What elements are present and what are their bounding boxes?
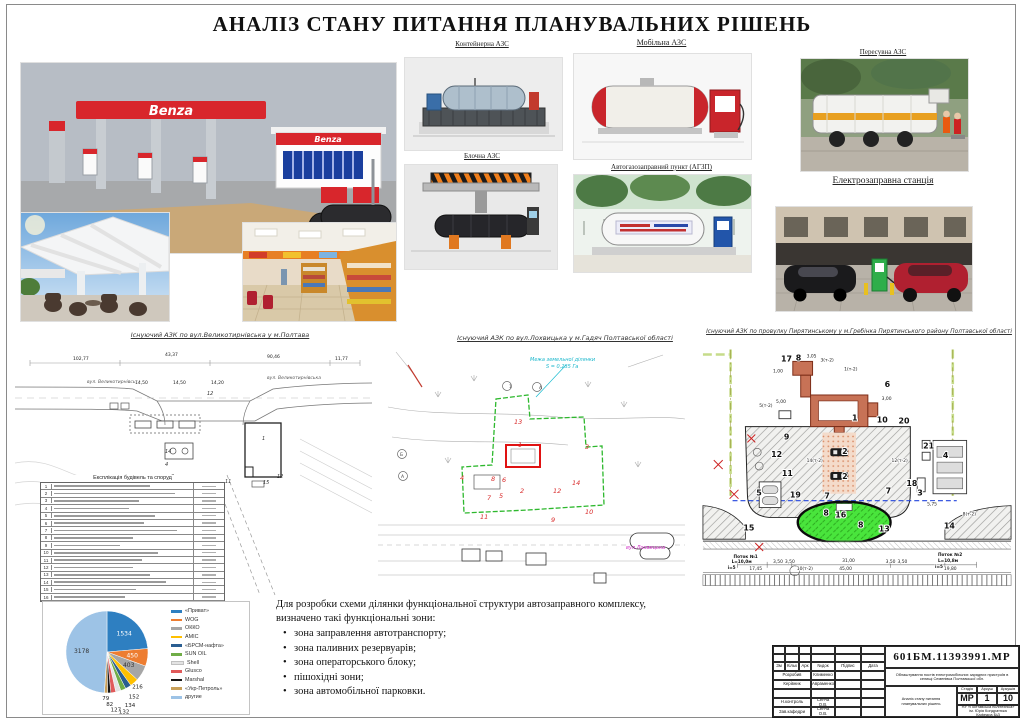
- plan-label: 5: [756, 489, 762, 498]
- legend-marker: [171, 619, 182, 622]
- plan-label: 7: [487, 494, 492, 502]
- stamp-role-head: Зав.кафедри: [773, 707, 811, 717]
- explication-row: 15: [41, 586, 224, 593]
- legend-item: ОККО: [171, 624, 247, 633]
- stamp-name-supervisor: Авраменко: [811, 680, 835, 689]
- ev-charging-photo: [775, 206, 973, 312]
- caption-plan-hrebinka: Існуючий АЗК по провулку Пирятинському у…: [700, 329, 1018, 335]
- pie-value-label: 82: [106, 702, 113, 708]
- stamp-role-developer: Розробив: [773, 671, 811, 680]
- zone-bullet: зона операторського блоку;: [294, 656, 700, 670]
- plan-label: 11: [225, 479, 231, 485]
- plan-label: L=10,8м: [938, 558, 959, 563]
- plan-label: 45,00: [839, 566, 852, 572]
- plan-label: 3,50: [773, 559, 783, 565]
- stamp-col-ark: Арк: [799, 662, 811, 671]
- plan-label: 1: [852, 414, 858, 423]
- notes-line1: Для розробки схеми ділянки функціонально…: [276, 598, 700, 612]
- zones-bullet-list: зона заправлення автотранспорту;зона пал…: [282, 627, 700, 699]
- plan-label: 11: [782, 469, 793, 478]
- stamp-name-head: Сенча О.В.: [811, 707, 835, 717]
- zone-bullet: зона паливних резервуарів;: [294, 642, 700, 656]
- plan-label: 10(т-2): [797, 566, 813, 572]
- legend-item: Marshal: [171, 676, 247, 685]
- plan-label: 13: [514, 418, 522, 426]
- stamp-sheets-value: 10: [997, 693, 1019, 705]
- plan-label: Поток №2: [938, 552, 962, 557]
- stamp-organization: НУ «Полтавська політехніка» ім. Юрія Кон…: [957, 705, 1019, 717]
- plan-label: 9: [551, 516, 555, 524]
- plan-label: 21: [923, 441, 934, 450]
- caption-agzp: Автогазозаправний пункт (АГЗП): [573, 163, 750, 171]
- plan-label: 12: [277, 474, 283, 480]
- plan-label: 14: [165, 449, 171, 455]
- legend-marker: [171, 627, 182, 630]
- plan-label: 12(т-2): [892, 458, 908, 464]
- stamp-role-ncontrol: Н.контроль: [773, 698, 811, 707]
- legend-marker: [171, 644, 182, 647]
- plan-label: 14(т-2): [807, 458, 823, 464]
- explication-row: 2: [41, 490, 224, 497]
- svg-text:Межа земельної ділянки: Межа земельної ділянки: [530, 357, 596, 363]
- brand-pie-chart: 153445040321615213413212782793178 «Прива…: [42, 601, 250, 715]
- pie-value-label: 134: [125, 703, 136, 709]
- legend-marker: [171, 636, 182, 639]
- explication-row: 12: [41, 564, 224, 571]
- plan-label: 3,50: [785, 559, 795, 565]
- legend-item: АМІС: [171, 633, 247, 642]
- zone-bullet: зона автомобільної парковки.: [294, 685, 700, 699]
- svg-text:Benza: Benza: [314, 135, 341, 144]
- terrace-photo: [20, 212, 170, 322]
- block-azs-photo: [404, 164, 558, 270]
- legend-marker: [171, 687, 182, 690]
- plan-label: 16: [835, 510, 846, 519]
- stamp-sheet-title: Аналіз стану питання планувальних рішень: [885, 686, 957, 717]
- legend-marker: [171, 670, 182, 673]
- legend-marker: [171, 653, 182, 656]
- svg-text:вул. Великотирнівська: вул. Великотирнівська: [267, 375, 321, 381]
- stamp-col-kilk: Кільк: [785, 662, 799, 671]
- zone-bullet: пішохідні зони;: [294, 671, 700, 685]
- plan-label: 11,77: [335, 356, 348, 362]
- pie-value-label: 127: [111, 707, 122, 713]
- plan-label: 9: [784, 432, 790, 441]
- caption-movable-azs: Пересувна АЗС: [798, 48, 968, 56]
- plan-label: 4: [943, 451, 949, 460]
- plan-label: 1: [262, 436, 265, 442]
- plan-label: 14: [572, 479, 580, 487]
- plan-label: 102,77: [73, 356, 89, 362]
- plan-label: 14,50: [173, 380, 186, 386]
- explication-grid: 12345678910111213141516: [40, 482, 225, 602]
- svg-text:S = 0,235 Га: S = 0,235 Га: [546, 364, 578, 370]
- plan-label: 7: [824, 492, 830, 501]
- caption-plan-poltava: Існуючий АЗК по вул.Великотирнівська у м…: [80, 331, 360, 339]
- legend-marker: [171, 661, 184, 666]
- stamp-col-doc: №док: [811, 662, 835, 671]
- plan-label: 2: [520, 487, 524, 495]
- plan-label: 14: [944, 521, 955, 530]
- plan-label: 20: [898, 417, 909, 426]
- container-azs-photo: [404, 57, 563, 151]
- plan-label: 8: [796, 353, 802, 362]
- plan-label: 3,05: [807, 353, 817, 359]
- plan-label: 3,50: [886, 559, 896, 565]
- plan-label: 3: [917, 489, 923, 498]
- plan-label: 17: [781, 354, 792, 363]
- stamp-doc-number: 601БМ.11393991.МР: [885, 646, 1019, 668]
- legend-marker: [171, 696, 182, 699]
- notes-line2: визначено такі функціональні зони:: [276, 612, 700, 626]
- plan-label: 3(т-2): [820, 357, 834, 363]
- plan-label: 3,00: [882, 396, 892, 402]
- pie-value-label: 1534: [117, 630, 132, 637]
- store-interior-photo: [242, 222, 397, 322]
- stamp-sheet-value: 1: [977, 693, 997, 705]
- plan-label: 14,20: [211, 380, 224, 386]
- stamp-col-date: Дата: [861, 662, 885, 671]
- plan-label: 6: [885, 380, 891, 389]
- plan-label: 8(т-2): [963, 511, 977, 517]
- plan-label: 43,37: [165, 352, 178, 358]
- pie-svg: 153445040321615213413212782793178: [43, 602, 171, 714]
- plan-label: 5,75: [927, 502, 937, 508]
- caption-block-azs: Блочна АЗС: [402, 152, 562, 160]
- caption-plan-hadiach: Існуючий АЗК по вул.Лохвицька у м.Гадяч …: [440, 334, 690, 342]
- plan-label: 4: [460, 474, 464, 482]
- plan-label: 5,00: [776, 399, 786, 405]
- explication-row: 9: [41, 542, 224, 549]
- explication-title: Експлікація будівель та споруд: [40, 475, 225, 481]
- explication-row: 13: [41, 572, 224, 579]
- plan-label: 2: [842, 472, 848, 481]
- plan-label: 6: [502, 476, 506, 484]
- plan-label: 12: [207, 391, 213, 397]
- plan-label: 5: [499, 492, 503, 500]
- chart-legend: «Приват»WOGОККОАМІС«БРСМ-нафта»SUN OILSh…: [171, 607, 247, 702]
- explication-table: Експлікація будівель та споруд 123456789…: [40, 475, 225, 602]
- plan-label: 19,80: [944, 566, 957, 572]
- legend-marker: [171, 610, 182, 613]
- plan-label: 19: [790, 491, 801, 500]
- caption-mobile-azs: Мобільна АЗС: [573, 38, 750, 47]
- plan-label: 12: [553, 487, 561, 495]
- plan-label: 8: [823, 508, 829, 517]
- plan-label: А: [401, 474, 405, 480]
- plan-label: 8: [491, 475, 495, 483]
- plan-label: 15: [263, 480, 269, 486]
- plan-poltava: вул. Великотирнівська вул. Великотирнівс…: [15, 343, 372, 597]
- explication-row: 3: [41, 498, 224, 505]
- poster-page: АНАЛІЗ СТАНУ ПИТАННЯ ПЛАНУВАЛЬНИХ РІШЕНЬ…: [0, 0, 1024, 724]
- plan-label: 8: [858, 520, 864, 529]
- plan-label: 1(т-2): [844, 366, 858, 372]
- legend-item: «Приват»: [171, 607, 247, 616]
- explication-row: 8: [41, 535, 224, 542]
- plan-label: 1,00: [773, 368, 783, 374]
- plan-label: 18: [906, 479, 917, 488]
- plan-label: 10: [585, 508, 593, 516]
- caption-electro-station: Електрозаправна станція: [793, 176, 973, 186]
- plan-label: 2: [842, 447, 848, 456]
- plan-label: Б: [400, 452, 403, 458]
- stamp-sheets-label: Аркушів: [997, 686, 1019, 693]
- explication-row: 14: [41, 579, 224, 586]
- plan-label: 11: [480, 513, 488, 521]
- pie-value-label: 216: [132, 684, 143, 690]
- legend-item: Shell: [171, 659, 247, 668]
- explication-row: 10: [41, 550, 224, 557]
- legend-marker: [171, 679, 182, 682]
- legend-item: Glusco: [171, 667, 247, 676]
- plan-label: 12: [771, 450, 782, 459]
- plan-label: 4: [165, 462, 168, 468]
- pie-value-label: 152: [129, 694, 140, 700]
- stamp-role-supervisor: Керівник: [773, 680, 811, 689]
- pie-value-label: 450: [126, 652, 138, 659]
- pie-value-label: 3178: [74, 648, 89, 655]
- plan-label: L=10,0м: [732, 559, 753, 564]
- plan-label: 15: [743, 523, 754, 532]
- svg-text:вул.Лохвицька: вул.Лохвицька: [626, 545, 665, 551]
- agzp-photo: [573, 174, 752, 273]
- svg-text:Benza: Benza: [149, 104, 193, 119]
- explication-row: 6: [41, 520, 224, 527]
- stamp-col-sign: Підпис: [835, 662, 861, 671]
- legend-item: «Укр-Петроль»: [171, 684, 247, 693]
- mobile-azs-photo: [573, 53, 752, 160]
- explication-row: 5: [41, 513, 224, 520]
- stamp-stage-value: МР: [957, 693, 977, 705]
- plan-label: 3: [585, 443, 589, 451]
- functional-zones-notes: Для розробки схеми ділянки функціонально…: [276, 598, 700, 700]
- plan-label: 1: [518, 441, 522, 449]
- plan-hadiach-drawing: Межа земельної ділянки S = 0,235 Га вул.…: [378, 347, 685, 595]
- plan-label: 31,00: [842, 558, 855, 564]
- explication-row: 1: [41, 483, 224, 490]
- plan-label: 1: [509, 384, 512, 390]
- plan-label: 90,46: [267, 354, 280, 360]
- plan-label: 7: [886, 487, 892, 496]
- legend-item: «БРСМ-нафта»: [171, 641, 247, 650]
- explication-row: 7: [41, 527, 224, 534]
- explication-row: 11: [41, 557, 224, 564]
- plan-label: і=5: [728, 565, 736, 570]
- zone-bullet: зона заправлення автотранспорту;: [294, 627, 700, 641]
- plan-label: 10: [877, 416, 888, 425]
- legend-item: WOG: [171, 616, 247, 625]
- stamp-name-developer: Клименко: [811, 671, 835, 680]
- caption-container-azs: Контейнерна АЗС: [402, 40, 562, 48]
- plan-label: і=5: [935, 564, 943, 569]
- pie-value-label: 79: [102, 696, 109, 702]
- movable-azs-truck-photo: [800, 58, 969, 172]
- explication-row: 4: [41, 505, 224, 512]
- legend-item: другие: [171, 693, 247, 702]
- plan-label: 17,45: [749, 566, 762, 572]
- stamp-name-ncontrol: Сенча О.В.: [811, 698, 835, 707]
- stamp-sheet-label: Аркуш: [977, 686, 997, 693]
- plan-label: 3,50: [897, 559, 907, 565]
- stamp-stage-label: Стадія: [957, 686, 977, 693]
- plan-label: 5(т-2): [759, 403, 773, 409]
- svg-text:вул. Великотирнівська: вул. Великотирнівська: [87, 379, 141, 385]
- stamp-project-name: Облаштування постів електромобільних зар…: [885, 668, 1019, 686]
- plan-label: 13: [879, 524, 890, 533]
- stamp-org-line3: Кафедра БіД: [976, 713, 999, 717]
- plan-label: 14,50: [135, 380, 148, 386]
- stamp-col-zm: Зм: [773, 662, 785, 671]
- page-title: АНАЛІЗ СТАНУ ПИТАННЯ ПЛАНУВАЛЬНИХ РІШЕНЬ: [0, 12, 1024, 37]
- title-block: Зм Кільк Арк №док Підпис Дата Розробив К…: [772, 645, 1020, 718]
- legend-item: SUN OIL: [171, 650, 247, 659]
- plan-hrebinka-drawing: 17861102091211519227716881318321414151,0…: [698, 344, 1016, 602]
